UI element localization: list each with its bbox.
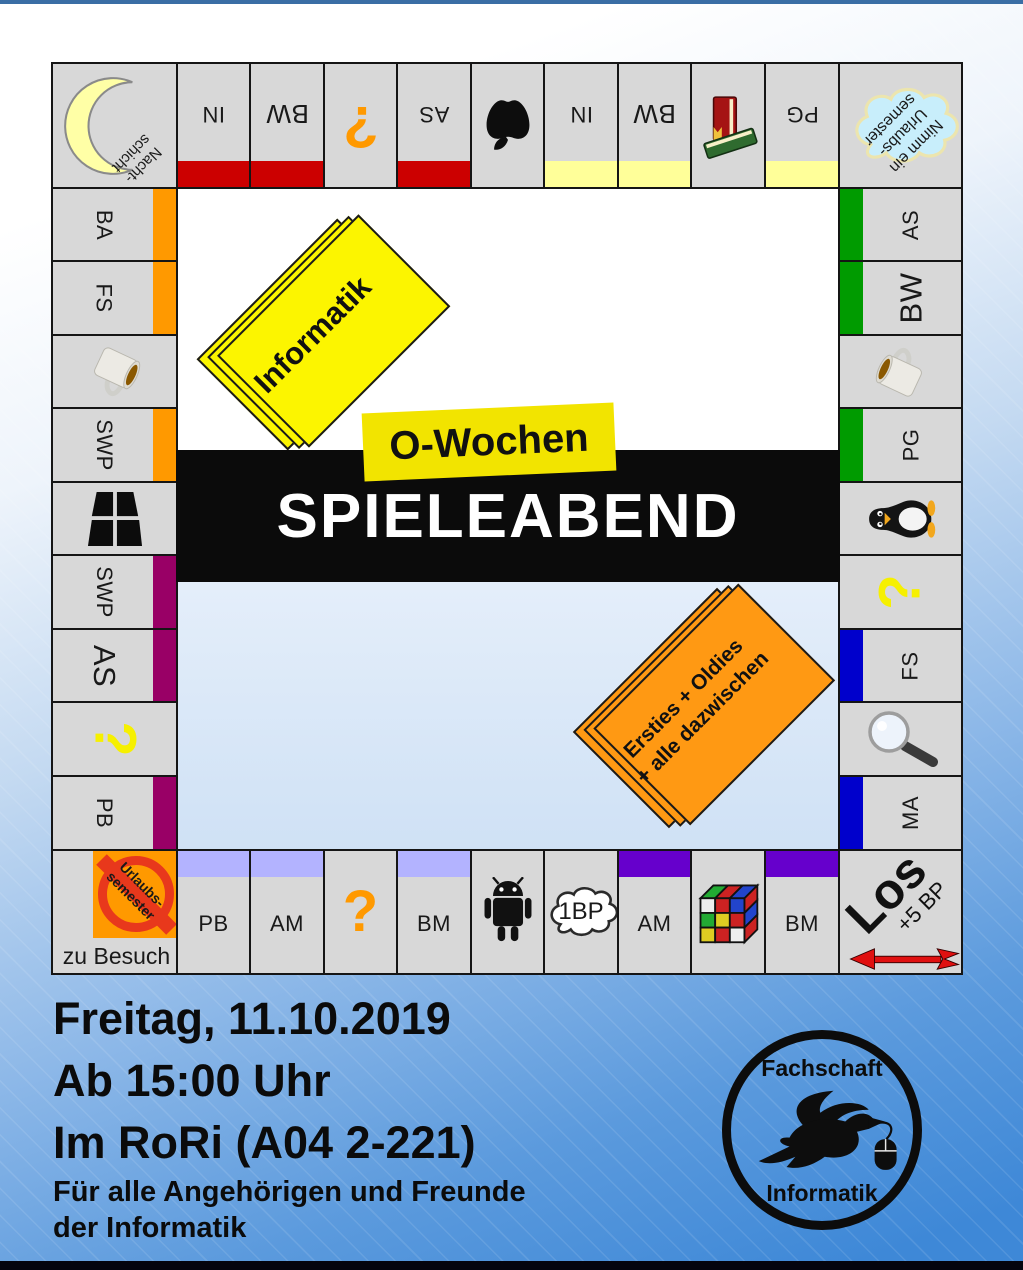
cell-top-in-2: IN [543,62,619,189]
cell-left-window [51,481,178,556]
cell-left-swp-2: SWP [51,554,178,630]
coffee-mug-icon [75,334,154,409]
question-mark-icon: ? [343,883,378,941]
android-icon [477,877,539,947]
corner-nachtschicht: Nacht- schicht [51,62,178,189]
corner-urlaubssemester-nimm: Nimm ein Urlaubs- semester [838,62,963,189]
cell-right-ma: MA [838,775,963,851]
color-bar [153,777,176,849]
cell-right-tux [838,481,963,556]
cell-left-fs: FS [51,260,178,336]
apple-icon [482,96,534,156]
color-bar [251,851,323,877]
color-bar [398,851,470,877]
cell-top-as: AS [396,62,472,189]
tux-penguin-icon [866,487,936,551]
cell-right-pg: PG [838,407,963,483]
cell-bottom-pb: PB [176,849,251,975]
poster: Nacht- schicht Nimm ein Urlaubs- semeste… [0,0,1023,1270]
event-title: SPIELEABEND [277,481,740,552]
cell-top-question: ? [323,62,398,189]
color-bar [619,851,690,877]
corner-zu-besuch: Urlaubs- semester zu Besuch [51,849,178,975]
cell-top-books [690,62,766,189]
cell-bottom-am-1: AM [249,849,325,975]
cell-top-bw-2: BW [617,62,692,189]
bottom-border-line [0,1261,1023,1270]
color-bar [766,851,838,877]
cell-left-mug [51,334,178,409]
cell-bottom-1bp: 1BP [543,849,619,975]
color-bar [840,630,863,701]
logo-text-top: Fachschaft [731,1055,913,1082]
cell-left-swp-1: SWP [51,407,178,483]
color-bar [840,409,863,481]
cell-left-pb: PB [51,775,178,851]
color-bar [153,409,176,481]
color-bar [153,630,176,701]
color-bar [153,556,176,628]
dove-with-mouse-icon [745,1079,903,1189]
color-bar [398,161,470,187]
event-audience-line1: Für alle Angehörigen und Freunde [53,1174,526,1210]
window-icon [87,488,143,550]
color-bar [178,161,249,187]
color-bar [766,161,838,187]
corner-los: Los +5 BP [838,849,963,975]
fachschaft-logo: Fachschaft Informatik [722,1030,922,1230]
color-bar [545,161,617,187]
cell-right-bw: BW [838,260,963,336]
top-border-line [0,0,1023,4]
cell-right-as: AS [838,187,963,262]
owochen-label: O-Wochen [362,403,617,482]
cell-left-as: AS [51,628,178,703]
logo-text-bottom: Informatik [731,1180,913,1207]
cell-bottom-am-2: AM [617,849,692,975]
cell-bottom-bm-1: BM [396,849,472,975]
color-bar [153,262,176,334]
cell-bottom-rubiks [690,849,766,975]
color-bar [178,851,249,877]
monopoly-board: Nacht- schicht Nimm ein Urlaubs- semeste… [51,62,963,975]
cell-top-pg: PG [764,62,840,189]
color-bar [153,189,176,260]
cell-bottom-question: ? [323,849,398,975]
event-date: Freitag, 11.10.2019 [53,988,526,1050]
books-icon [695,93,761,159]
cell-right-magnifier [838,701,963,777]
event-location: Im RoRi (A04 2-221) [53,1112,526,1174]
color-bar [840,777,863,849]
question-mark-icon: ? [86,721,144,756]
coffee-mug-icon [861,334,940,409]
cell-left-ba: BA [51,187,178,262]
magnifying-glass-icon [859,708,943,770]
rubiks-cube-icon [695,876,761,948]
question-mark-icon: ? [343,97,378,155]
cell-right-question: ? [838,554,963,630]
zu-besuch-label: zu Besuch [58,943,175,969]
color-bar [619,161,690,187]
cell-top-bw-1: BW [249,62,325,189]
cell-top-apple [470,62,545,189]
informatik-card-label: Informatik [247,269,378,400]
cell-bottom-android [470,849,545,975]
los-arrow-icon [848,947,960,971]
cell-left-question: ? [51,701,178,777]
event-details: Freitag, 11.10.2019 Ab 15:00 Uhr Im RoRi… [53,988,526,1246]
1bp-label: 1BP [558,898,603,926]
no-urlaubssemester-sign: Urlaubs- semester [93,851,180,938]
color-bar [840,189,863,260]
color-bar [840,262,863,334]
event-time: Ab 15:00 Uhr [53,1050,526,1112]
color-bar [251,161,323,187]
question-mark-icon: ? [872,574,930,609]
cell-right-mug [838,334,963,409]
cell-bottom-bm-2: BM [764,849,840,975]
cell-top-in-1: IN [176,62,251,189]
event-audience-line2: der Informatik [53,1210,526,1246]
cell-right-fs: FS [838,628,963,703]
